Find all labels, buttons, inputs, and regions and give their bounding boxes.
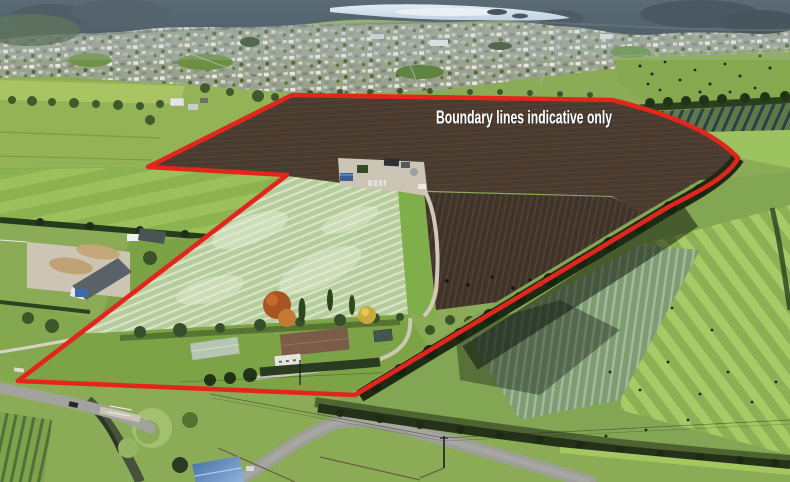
- garden-rows: [0, 412, 52, 482]
- aerial-photo-frame: Boundary lines indicative only Boundary …: [0, 0, 790, 482]
- small-trailer: [246, 466, 254, 471]
- boundary-label: Boundary lines indicative only: [436, 108, 612, 128]
- aerial-photo: Boundary lines indicative only Boundary …: [0, 0, 790, 482]
- garden-shed: [374, 329, 393, 342]
- horizon-haze: [0, 0, 790, 60]
